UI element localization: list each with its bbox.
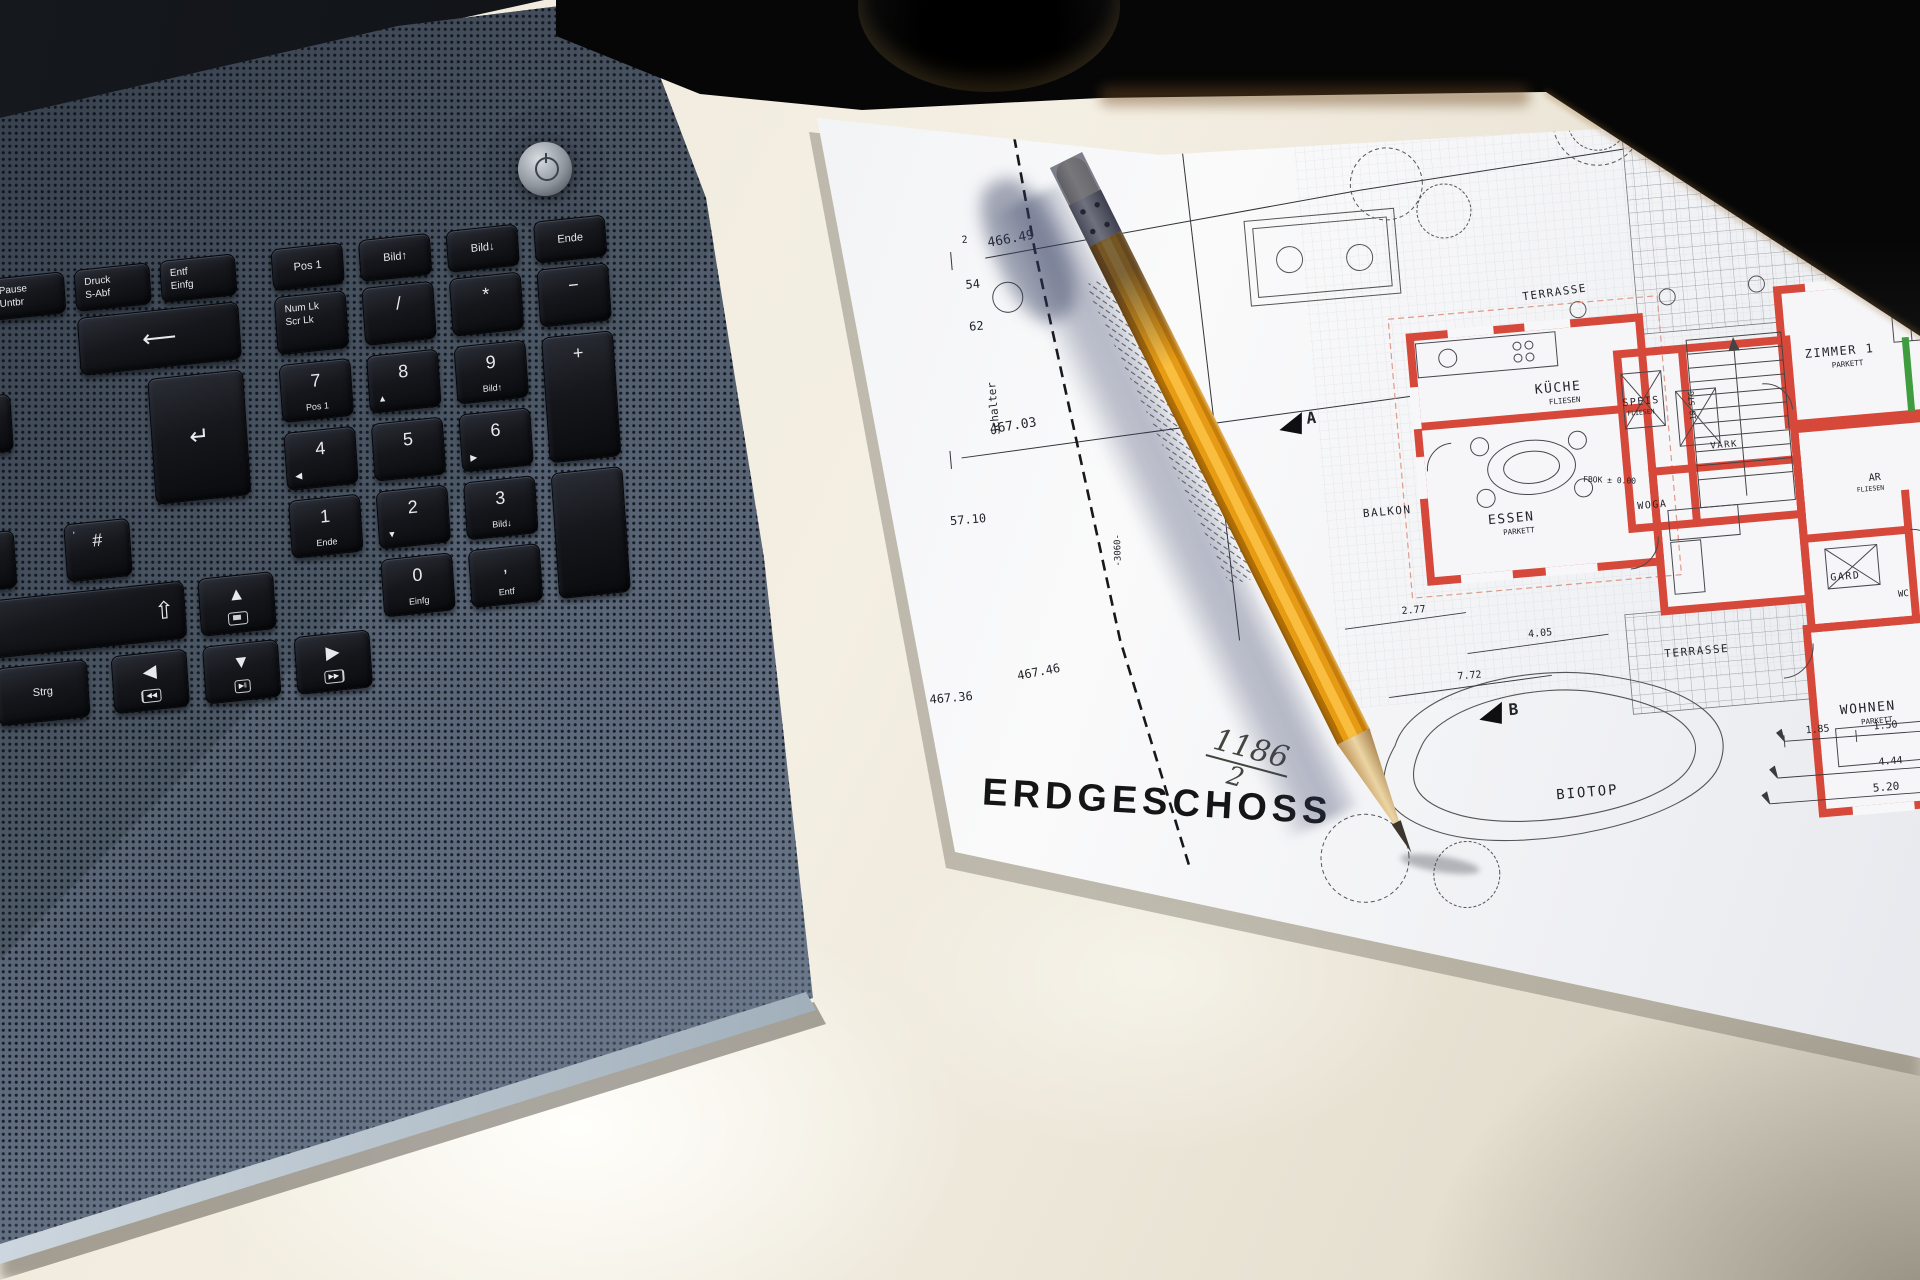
backspace-icon: ⟵ [79,318,240,359]
key-label: Pause [0,284,27,297]
key-np-plus[interactable]: + [541,330,621,463]
shift-icon: ⇧ [154,599,176,625]
key-label: / [363,291,434,316]
power-button[interactable] [518,142,572,196]
key-label: ◀ [295,471,303,481]
key-label: 0 [382,562,453,587]
key-np9[interactable]: 9Bild↑ [454,339,530,404]
key-hash[interactable]: '# [63,518,133,583]
key-label: 4 [285,436,356,461]
key-label: 5 [372,427,443,452]
background-edge-glow [1100,86,1530,106]
key-label: ▼ [387,530,397,540]
key-label: ▼ [204,649,279,675]
key-strg[interactable]: Strg [0,659,91,727]
key-label: Entf [170,267,188,279]
key-label: Bild↑ [360,248,430,266]
key-label: ▶ [295,639,370,665]
key-arrow-left[interactable]: ◀◀◀ [111,648,191,714]
key-np5[interactable]: 5 [371,416,447,481]
next-track-icon: ▶▶ [324,669,345,684]
key-np-multiply[interactable]: * [449,271,525,336]
key-np2[interactable]: 2▼ [376,484,452,549]
key-plus-star-tilde[interactable]: *+~ [0,393,14,458]
key-label: Untbr [0,298,24,311]
key-label: 2 [377,494,448,519]
key-arrow-down[interactable]: ▼▶‖ [202,639,282,705]
play-track-icon: ▶‖ [234,679,251,694]
key-label: Druck [84,275,111,288]
key-label: 8 [368,359,439,384]
key-np-comma[interactable]: ,Entf [468,543,544,608]
laptop: PauseUntbrDruckS-AbfEntfEinfgPos 1Bild↑B… [0,0,1920,1280]
key-np1[interactable]: 1Ende [288,493,364,558]
key-pause[interactable]: PauseUntbr [0,271,66,321]
key-arrow-up[interactable]: ▲ [197,571,277,637]
key-np8[interactable]: 8▲ [366,349,442,414]
key-backspace[interactable]: ⟵ [77,301,242,376]
key-label: S-Abf [85,288,111,301]
key-label: + [543,340,614,365]
key-pos1-top[interactable]: Pos 1 [270,242,345,291]
key-label: Einfg [170,280,193,292]
key-np4[interactable]: 4◀ [283,426,359,491]
key-druck[interactable]: DruckS-Abf [73,262,152,312]
key-entf-top[interactable]: EntfEinfg [159,253,238,303]
key-label: ▶ [470,453,478,463]
key-label: Ende [535,230,605,248]
key-label: Ä [0,540,14,565]
key-bild-up-top[interactable]: Bild↑ [358,233,433,282]
key-label: ▲ [199,581,274,607]
prev-track-icon: ◀◀ [141,688,162,703]
key-label: Pos 1 [282,399,352,415]
key-label: ▲ [378,394,388,404]
key-label: − [538,272,609,297]
key-label: Strg [0,682,88,702]
power-icon [535,157,559,181]
key-np-minus[interactable]: − [536,262,612,327]
key-np6[interactable]: 6▶ [458,407,534,472]
key-np3[interactable]: 3Bild↓ [463,475,539,540]
key-enter[interactable]: ↵ [147,369,251,505]
key-label: 1 [290,504,361,529]
key-label: Bild↓ [448,239,518,257]
key-ae[interactable]: Ä [0,530,18,595]
enter-icon: ↵ [152,420,247,454]
key-label: Einfg [384,593,454,609]
key-label: 6 [460,417,531,442]
key-bild-down-top[interactable]: Bild↓ [445,224,520,273]
pencil-graphite-tip [1392,820,1416,855]
key-label: Ende [292,535,362,551]
display-toggle-icon [228,611,249,626]
key-np7[interactable]: 7Pos 1 [278,358,354,423]
key-label: ◀ [112,659,187,685]
key-label: Bild↓ [467,516,537,532]
key-np-enter[interactable] [551,466,631,599]
keyboard: PauseUntbrDruckS-AbfEntfEinfgPos 1Bild↑B… [0,209,689,749]
key-label: 9 [455,349,526,374]
key-label: , [469,553,540,578]
key-label: * [450,282,521,307]
key-ende-top[interactable]: Ende [533,214,608,263]
key-label: 3 [465,485,536,510]
key-numlock[interactable]: Num LkScr Lk [274,290,350,355]
key-label: Entf [472,584,542,600]
key-label: Pos 1 [272,258,342,276]
key-label: Scr Lk [285,315,314,328]
key-arrow-right[interactable]: ▶▶▶ [294,629,374,695]
key-label: Num Lk [284,302,319,316]
key-np0[interactable]: 0Einfg [380,552,456,617]
key-label: 7 [280,368,351,393]
key-label: Bild↑ [457,380,527,396]
key-label: + [0,404,11,429]
key-np-divide[interactable]: / [361,281,437,346]
